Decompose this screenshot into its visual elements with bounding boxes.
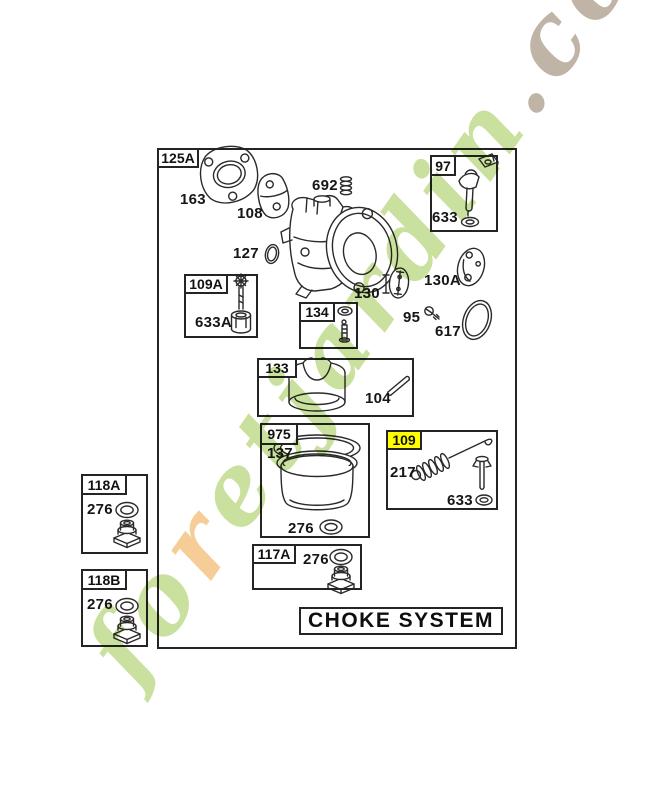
part-number-95: 95 bbox=[403, 309, 420, 326]
part-number-617: 617 bbox=[435, 323, 461, 340]
callout-box-133: 133 bbox=[257, 358, 414, 417]
part-number-104: 104 bbox=[365, 390, 391, 407]
callout-label-133: 133 bbox=[259, 360, 297, 378]
part-number-276-in-117A: 276 bbox=[303, 551, 329, 568]
part-number-276-in-118A: 276 bbox=[87, 501, 113, 518]
part-number-108: 108 bbox=[237, 205, 263, 222]
part-number-130A: 130A bbox=[424, 272, 461, 289]
callout-label-975: 975 bbox=[262, 425, 298, 445]
callout-box-134: 134 bbox=[299, 302, 358, 349]
part-number-633-in-97: 633 bbox=[432, 209, 458, 226]
part-number-692: 692 bbox=[312, 177, 338, 194]
part-number-633-in-109: 633 bbox=[447, 492, 473, 509]
system-title: CHOKE SYSTEM bbox=[299, 607, 503, 635]
callout-box-975: 975 bbox=[260, 423, 370, 538]
part-number-137: 137 bbox=[267, 445, 293, 462]
callout-label-125A: 125A bbox=[159, 150, 199, 168]
part-number-130: 130 bbox=[354, 285, 380, 302]
part-number-217: 217 bbox=[390, 464, 416, 481]
parts-diagram-image: 125A 97 109A 134 133 975 109 117A 118A 1… bbox=[0, 0, 652, 800]
callout-label-109A: 109A bbox=[186, 276, 228, 294]
part-number-163: 163 bbox=[180, 191, 206, 208]
part-number-633A: 633A bbox=[195, 314, 232, 331]
callout-label-134: 134 bbox=[301, 304, 335, 322]
callout-label-117A: 117A bbox=[254, 546, 296, 564]
callout-label-118B: 118B bbox=[83, 571, 127, 590]
part-number-276-in-975: 276 bbox=[288, 520, 314, 537]
callout-label-109-highlighted: 109 bbox=[388, 432, 422, 450]
part-number-127: 127 bbox=[233, 245, 259, 262]
part-number-276-in-118B: 276 bbox=[87, 596, 113, 613]
callout-label-118A: 118A bbox=[83, 476, 127, 495]
callout-label-97: 97 bbox=[432, 157, 456, 176]
